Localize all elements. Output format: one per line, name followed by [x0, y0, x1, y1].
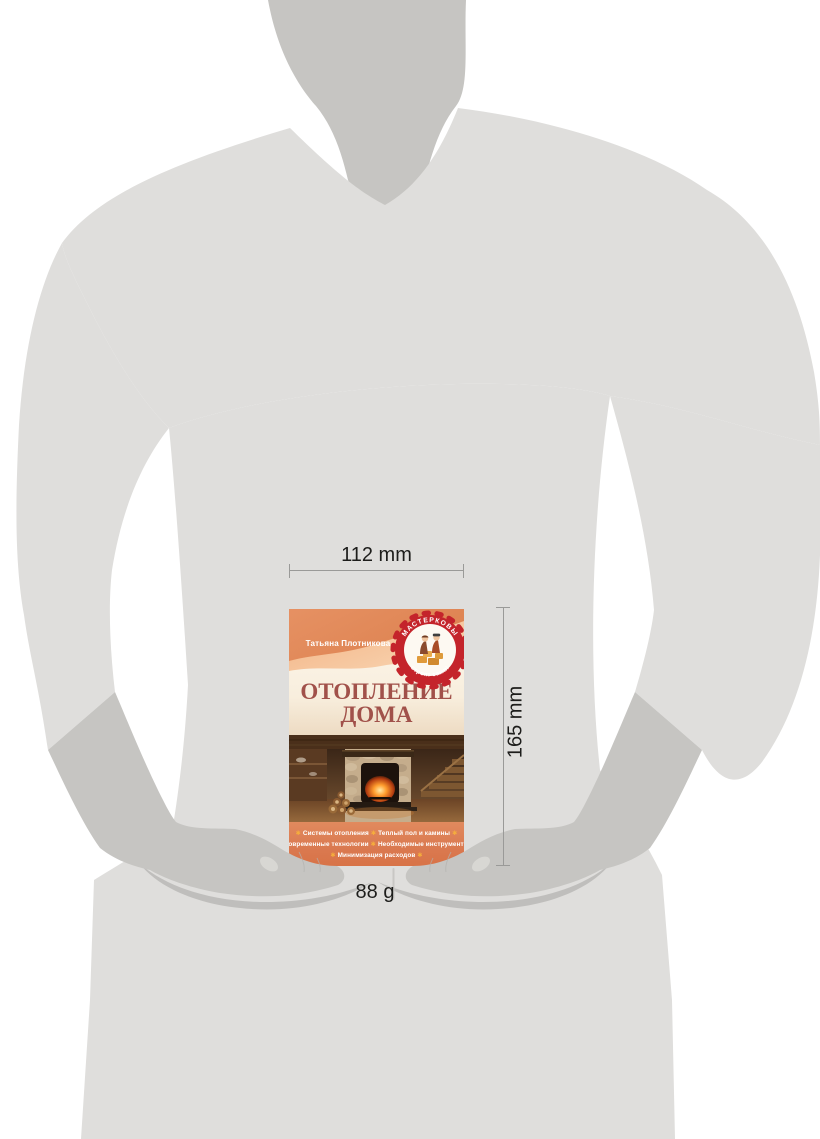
right-hand — [406, 692, 702, 896]
left-hand — [48, 692, 344, 896]
width-label: 112 mm — [289, 544, 464, 567]
height-tick-top — [496, 607, 510, 608]
product-size-visualization: Татьяна Плотникова — [0, 0, 820, 1139]
width-dimension-line — [289, 570, 464, 571]
weight-label: 88 g — [330, 881, 420, 904]
height-tick-bottom — [496, 865, 510, 866]
height-label: 165 mm — [505, 686, 528, 758]
